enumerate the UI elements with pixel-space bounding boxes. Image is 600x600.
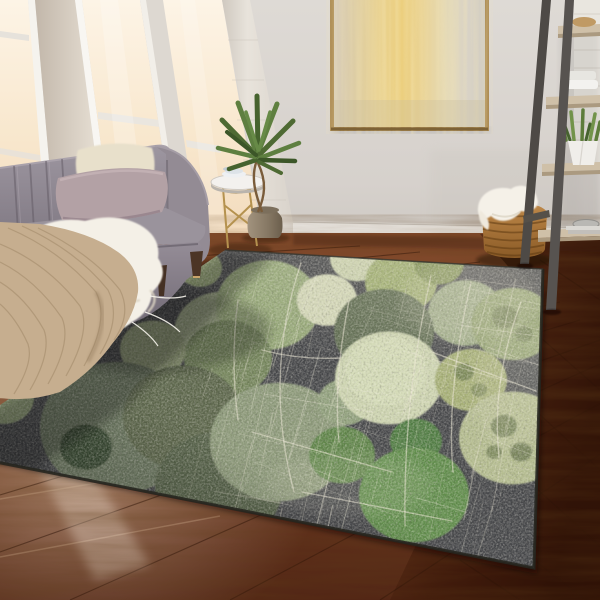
folded-towel (568, 71, 596, 80)
rail-foot-shadow (543, 309, 561, 315)
wall-art (330, 0, 489, 133)
magazine-stack (566, 226, 600, 230)
art-canvas-lower (334, 100, 485, 127)
rail-foot-shadow (517, 263, 533, 269)
plant-pot-rim (251, 206, 279, 213)
magazine-stack (568, 230, 600, 234)
basket-pouf (478, 186, 547, 258)
living-room-photo (0, 0, 600, 600)
screenshot-stage: Green circles geometric area rug in livi… (0, 0, 600, 600)
wood-bowl (572, 17, 596, 27)
folded-towel (566, 80, 598, 89)
